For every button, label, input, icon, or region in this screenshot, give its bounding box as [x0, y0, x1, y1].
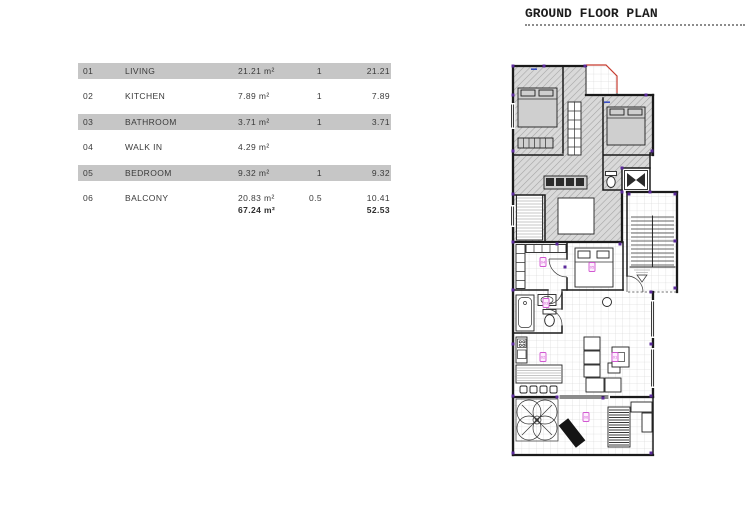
- room-label-03: 03: [543, 299, 549, 308]
- area-table: 01 LIVING 21.21 m² 1 21.21 02 KITCHEN 7.…: [78, 63, 391, 215]
- svg-text:01: 01: [613, 355, 618, 360]
- kitchen-counter-symbol: [544, 176, 587, 189]
- table-row-living: 01 LIVING 21.21 m² 1 21.21: [78, 63, 391, 88]
- svg-text:05: 05: [590, 265, 595, 270]
- page-title: GROUND FLOOR PLAN: [525, 6, 745, 21]
- room-area: 9.32 m²: [238, 165, 270, 181]
- svg-text:06: 06: [584, 415, 589, 420]
- room-factor: 1: [276, 165, 322, 181]
- room-area: 4.29 m²: [238, 139, 270, 155]
- room-value: 3.71: [328, 114, 390, 130]
- bathtub-symbol: [516, 295, 534, 331]
- bed-symbol: [518, 88, 557, 127]
- room-factor: [276, 139, 322, 155]
- room-name: KITCHEN: [125, 88, 165, 104]
- room-label-01: 01: [612, 353, 618, 362]
- elevator-symbol: [625, 171, 648, 190]
- upper-balcony-slats: [517, 195, 543, 240]
- room-label-02: 02: [540, 353, 546, 362]
- row-number: 04: [83, 139, 93, 155]
- room-label-06: 06: [583, 413, 589, 422]
- room-area: 7.89 m²: [238, 88, 270, 104]
- floor-plan: 01 02 03 04 05 06: [500, 45, 745, 470]
- room-value: [328, 139, 390, 155]
- table-totals-row: 67.24 m² 52.53: [78, 202, 391, 218]
- svg-text:02: 02: [541, 355, 546, 360]
- deck-slats-symbol: [608, 407, 630, 447]
- table-row-kitchen: 02 KITCHEN 7.89 m² 1 7.89: [78, 88, 391, 113]
- toilet-icon: [606, 172, 617, 188]
- room-factor: 1: [276, 63, 322, 79]
- table-symbol: [558, 198, 594, 234]
- kitchen-counter-symbol: [516, 337, 527, 363]
- room-factor: 1: [276, 88, 322, 104]
- room-label-04: 04: [540, 258, 546, 267]
- total-area: 67.24 m²: [238, 202, 275, 218]
- svg-text:03: 03: [544, 301, 549, 306]
- room-area: 21.21 m²: [238, 63, 275, 79]
- table-row-walkin: 04 WALK IN 4.29 m²: [78, 139, 391, 164]
- room-area: 3.71 m²: [238, 114, 270, 130]
- row-number: 05: [83, 165, 93, 181]
- table-row-bedroom: 05 BEDROOM 9.32 m² 1 9.32: [78, 165, 391, 190]
- room-name: BEDROOM: [125, 165, 172, 181]
- room-value: 9.32: [328, 165, 390, 181]
- side-table-symbol: [603, 298, 612, 307]
- room-name: LIVING: [125, 63, 155, 79]
- table-row-bathroom: 03 BATHROOM 3.71 m² 1 3.71: [78, 114, 391, 139]
- total-value: 52.53: [328, 202, 390, 218]
- row-number: 01: [83, 63, 93, 79]
- room-label-05: 05: [589, 263, 595, 272]
- wardrobe-symbol: [568, 102, 581, 155]
- dresser-symbol: [518, 138, 553, 148]
- room-name: BATHROOM: [125, 114, 177, 130]
- row-number: 03: [83, 114, 93, 130]
- bed-symbol: [607, 107, 645, 145]
- room-factor: 1: [276, 114, 322, 130]
- row-number: 02: [83, 88, 93, 104]
- svg-text:04: 04: [541, 260, 546, 265]
- title-dotted-rule: [525, 24, 745, 26]
- room-name: WALK IN: [125, 139, 162, 155]
- room-value: 7.89: [328, 88, 390, 104]
- room-value: 21.21: [328, 63, 390, 79]
